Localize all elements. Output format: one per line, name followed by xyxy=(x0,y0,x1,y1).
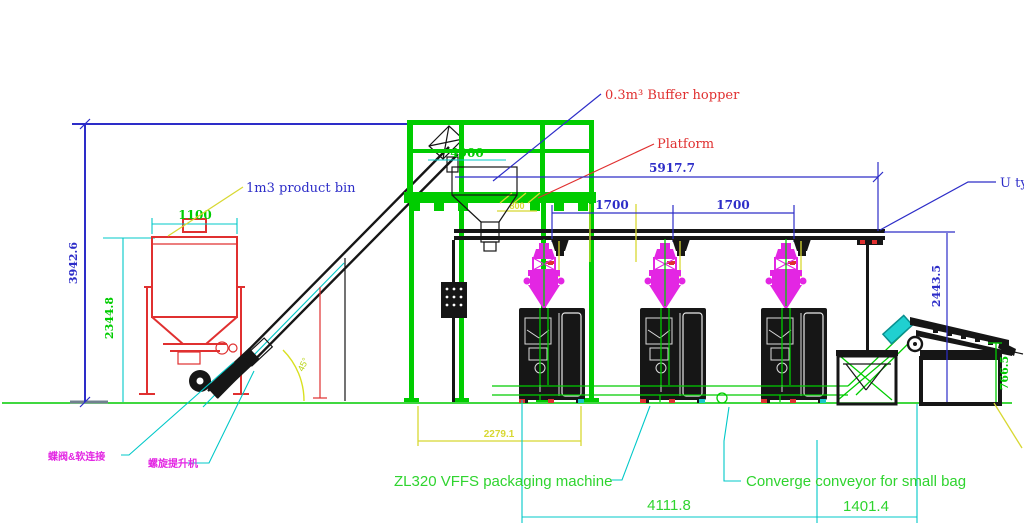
vffs-machine-2 xyxy=(640,239,706,403)
control-cabinet xyxy=(441,282,467,318)
dim-platform-span: 2279.1 xyxy=(418,406,581,446)
u-conveyor-label-text: U ty xyxy=(1000,176,1024,191)
platform-leg xyxy=(409,203,414,402)
takeaway-unit xyxy=(836,317,1023,448)
dim-text-line-len: 4111.8 xyxy=(647,497,691,514)
product-bin-label-text: 1m3 product bin xyxy=(246,181,356,196)
support-cabinet xyxy=(921,358,1000,404)
buffer-hopper-label: 0.3m³ Buffer hopper xyxy=(493,88,740,181)
converge-label-text: Converge conveyor for small bag xyxy=(746,473,966,490)
vffs-machine-1 xyxy=(519,239,585,403)
dim-text-platform-span: 2279.1 xyxy=(484,429,515,440)
screw-callout-text: 螺旋提升机 xyxy=(148,457,198,470)
dim-text-platform-len: 4900 xyxy=(450,146,483,160)
dim-bin-width: 1100 xyxy=(152,208,237,234)
dim-text-discharge-height: 766.5 xyxy=(998,356,1011,390)
buffer-hopper-label-text: 0.3m³ Buffer hopper xyxy=(605,88,740,103)
dim-text-pitch2: 1700 xyxy=(716,198,749,212)
vffs-machine-3 xyxy=(761,239,827,403)
dim-text-total-height: 3942.6 xyxy=(67,242,80,284)
dim-text-outfeed-len: 1401.4 xyxy=(843,498,889,515)
drawing-canvas: 3942.6 2344.8 1100 1m3 product bin xyxy=(0,0,1024,527)
platform-label-text: Platform xyxy=(657,137,714,152)
vffs-label-text: ZL320 VFFS packaging machine xyxy=(394,473,612,490)
dim-text-overall-span: 5917.7 xyxy=(649,161,695,175)
dim-text-pitch1: 1700 xyxy=(595,198,628,212)
u-conveyor-label: U ty xyxy=(880,176,1024,230)
angle-text: 45° xyxy=(296,356,311,373)
cad-drawing-packaging-line: 3942.6 2344.8 1100 1m3 product bin xyxy=(0,0,1024,527)
valve-callout-text: 蝶阀&软连接 xyxy=(48,450,105,463)
converge-label: Converge conveyor for small bag xyxy=(724,407,966,490)
dim-text-u-height: 2443.5 xyxy=(930,265,943,307)
dim-machine-pitch: 1700 1700 xyxy=(552,198,794,242)
dim-text-bin-height: 2344.8 xyxy=(103,297,116,339)
